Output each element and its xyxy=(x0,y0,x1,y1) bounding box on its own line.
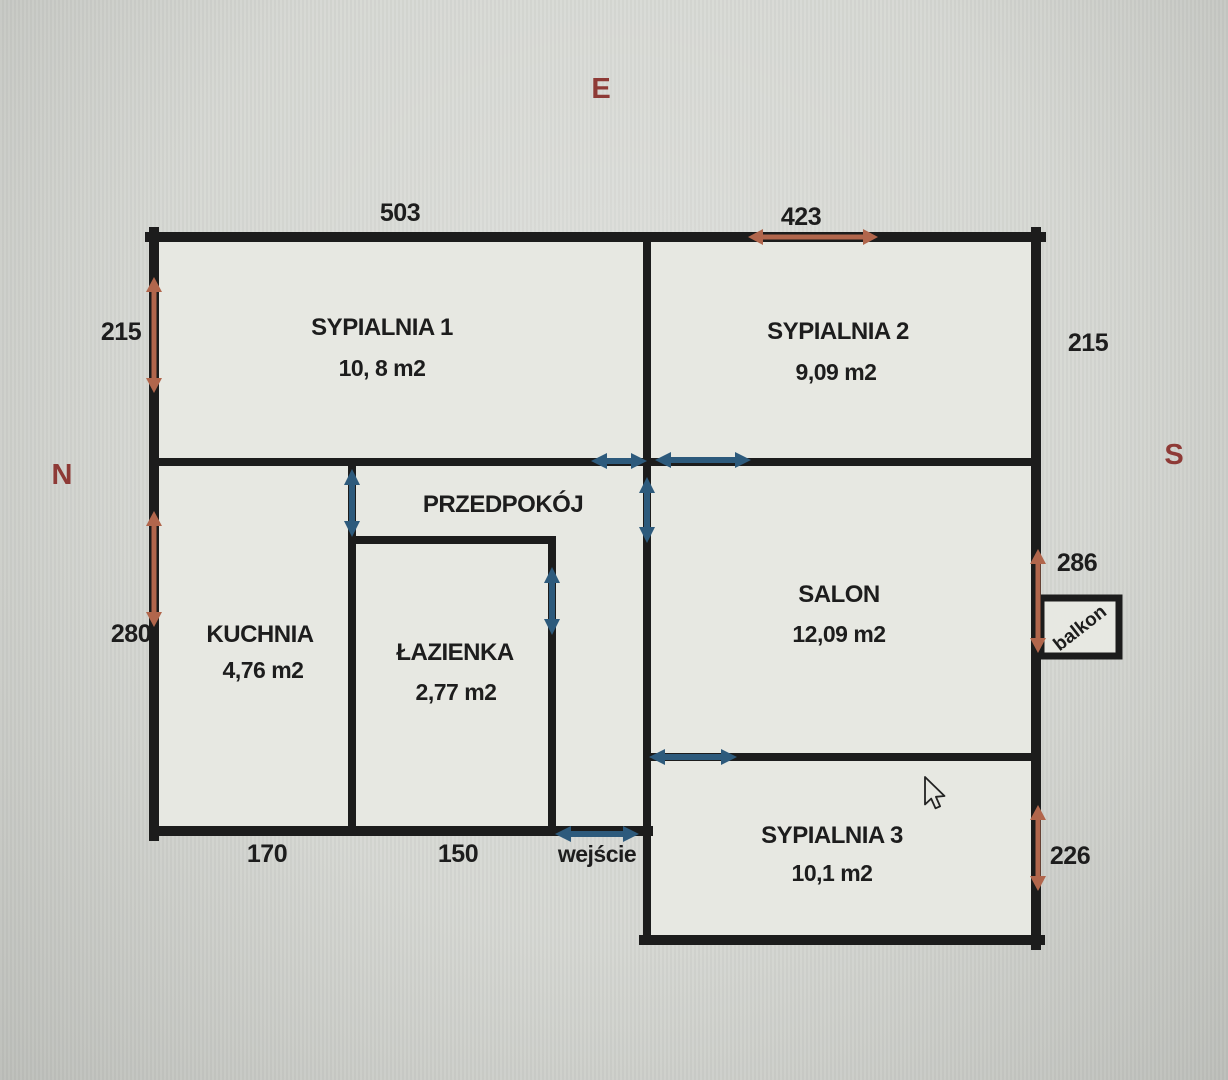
compass-east: E xyxy=(591,73,610,105)
kuchnia-name: KUCHNIA xyxy=(206,621,313,648)
floor-plan-photo: balkon xyxy=(0,0,1228,1080)
compass-south: S xyxy=(1164,439,1183,471)
salon-name: SALON xyxy=(798,581,880,608)
lazienka-name: ŁAZIENKA xyxy=(396,639,513,666)
dimension-label-423: 423 xyxy=(781,203,821,231)
dimension-label-286: 286 xyxy=(1057,549,1097,577)
sypialnia1-area: 10, 8 m2 xyxy=(339,355,426,381)
sypialnia3-area: 10,1 m2 xyxy=(792,860,873,886)
sypialnia2-name: SYPIALNIA 2 xyxy=(767,318,909,345)
entrance-label: wejście xyxy=(557,841,636,867)
sypialnia1-name: SYPIALNIA 1 xyxy=(311,314,453,341)
kuchnia-area: 4,76 m2 xyxy=(223,657,304,683)
dimension-label-503: 503 xyxy=(380,199,420,227)
sypialnia3-name: SYPIALNIA 3 xyxy=(761,822,903,849)
dimension-label-150: 150 xyxy=(438,840,478,868)
dimension-label-215-left: 215 xyxy=(101,318,142,346)
przedpokoj-name: PRZEDPOKÓJ xyxy=(423,490,583,518)
dimension-label-170: 170 xyxy=(247,840,287,868)
dimension-label-280: 280 xyxy=(111,620,151,648)
floor-plan-svg: balkon xyxy=(0,0,1228,1080)
sypialnia2-area: 9,09 m2 xyxy=(796,359,877,385)
lazienka-area: 2,77 m2 xyxy=(416,679,497,705)
salon-area: 12,09 m2 xyxy=(792,621,885,647)
compass-north: N xyxy=(52,459,73,491)
balkon-room: balkon xyxy=(1041,598,1119,656)
dimension-label-215-right: 215 xyxy=(1068,329,1109,357)
dimension-label-226: 226 xyxy=(1050,842,1090,870)
